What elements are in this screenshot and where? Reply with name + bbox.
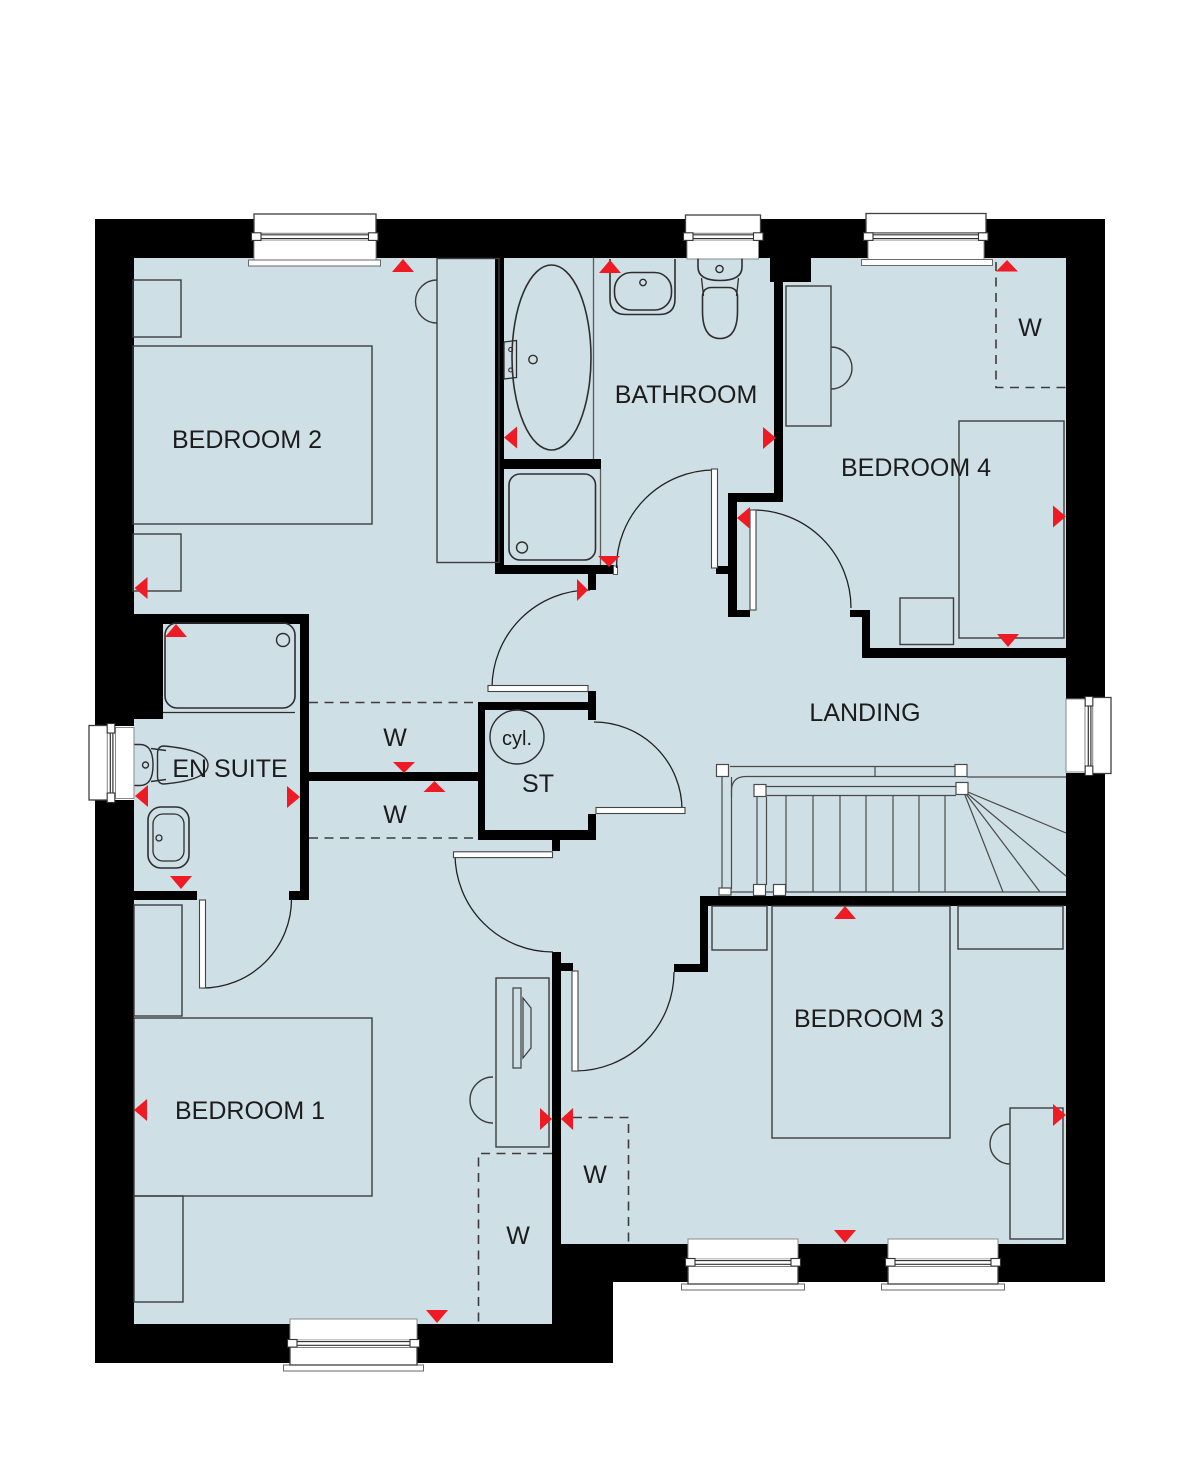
- svg-text:W: W: [583, 1161, 607, 1189]
- svg-text:W: W: [383, 801, 407, 829]
- svg-text:W: W: [506, 1222, 530, 1250]
- svg-text:BEDROOM 2: BEDROOM 2: [172, 426, 322, 454]
- svg-text:EN SUITE: EN SUITE: [172, 755, 287, 783]
- svg-text:W: W: [383, 724, 407, 752]
- svg-text:BEDROOM 4: BEDROOM 4: [841, 454, 991, 482]
- svg-text:ST: ST: [522, 770, 554, 798]
- svg-text:W: W: [1018, 314, 1042, 342]
- svg-text:LANDING: LANDING: [809, 699, 920, 727]
- svg-text:BEDROOM 1: BEDROOM 1: [175, 1097, 325, 1125]
- svg-text:BATHROOM: BATHROOM: [615, 381, 758, 409]
- svg-text:BEDROOM 3: BEDROOM 3: [794, 1005, 944, 1033]
- svg-text:cyl.: cyl.: [502, 728, 532, 750]
